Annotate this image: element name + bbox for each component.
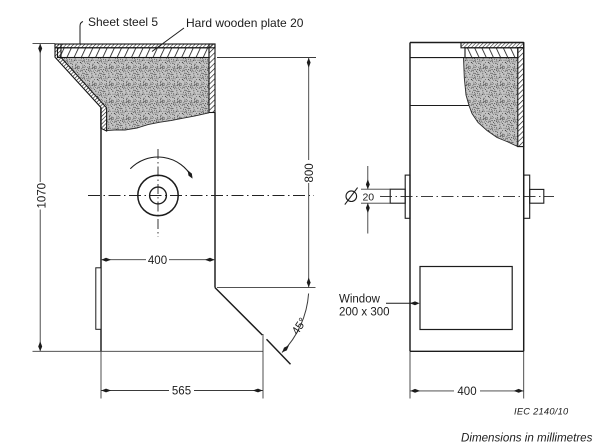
svg-text:200 x 300: 200 x 300 [339,307,390,319]
svg-text:IEC 2140/10: IEC 2140/10 [514,407,569,417]
svg-text:1070: 1070 [36,183,48,209]
svg-text:Window: Window [339,294,381,306]
svg-text:400: 400 [148,255,167,267]
svg-text:Hard wooden plate 20: Hard wooden plate 20 [186,16,304,30]
svg-text:Sheet steel 5: Sheet steel 5 [88,15,158,29]
svg-text:800: 800 [304,163,316,182]
svg-text:565: 565 [172,386,191,398]
svg-text:20: 20 [362,192,374,204]
svg-text:400: 400 [457,386,476,398]
svg-text:Dimensions in millimetres: Dimensions in millimetres [461,432,593,445]
